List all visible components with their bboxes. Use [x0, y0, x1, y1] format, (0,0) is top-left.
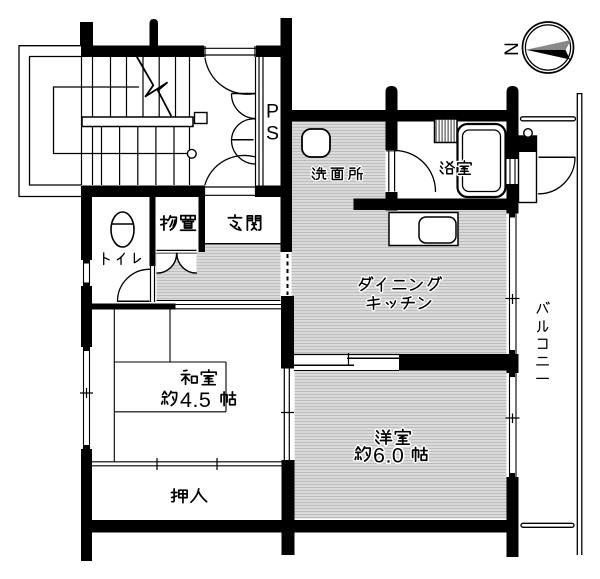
svg-text:6.0: 6.0 [373, 444, 404, 468]
svg-text:4.5: 4.5 [180, 388, 211, 412]
svg-text:N: N [502, 42, 523, 56]
svg-text:P: P [266, 101, 279, 123]
svg-text:S: S [266, 123, 279, 145]
